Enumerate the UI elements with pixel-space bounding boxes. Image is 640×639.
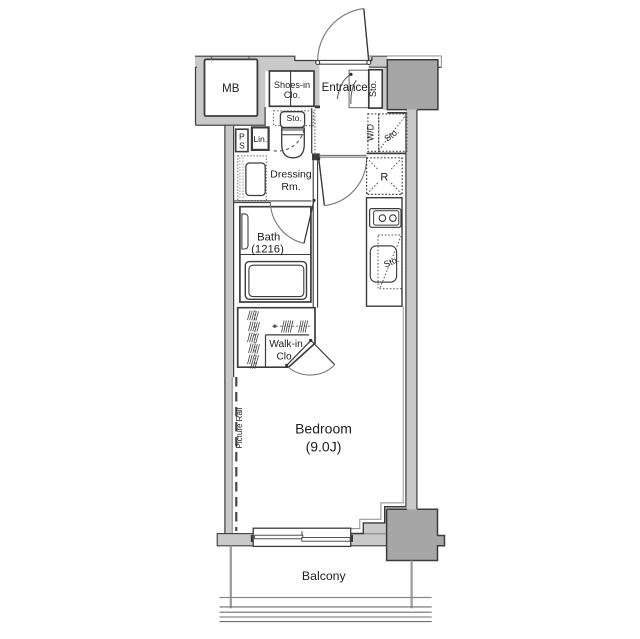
- svg-text:Walk-in: Walk-in: [269, 339, 303, 350]
- svg-text:Sto.: Sto.: [287, 113, 302, 123]
- svg-text:Balcony: Balcony: [302, 569, 347, 583]
- svg-text:Lin.: Lin.: [253, 134, 267, 144]
- svg-text:(1216): (1216): [251, 244, 284, 256]
- svg-text:Bath: Bath: [257, 232, 280, 244]
- svg-text:R: R: [380, 172, 388, 184]
- svg-text:Bedroom: Bedroom: [295, 421, 352, 437]
- svg-text:Dressing: Dressing: [270, 168, 312, 180]
- svg-text:Shoes-in: Shoes-in: [274, 80, 310, 90]
- svg-text:Picture Rail: Picture Rail: [235, 407, 244, 448]
- svg-text:Rm.: Rm.: [281, 181, 300, 193]
- svg-text:Entrance: Entrance: [322, 82, 368, 94]
- svg-text:MB: MB: [222, 83, 240, 95]
- svg-text:W/D: W/D: [365, 124, 375, 141]
- svg-text:(9.0J): (9.0J): [306, 439, 342, 455]
- svg-text:Sto.: Sto.: [368, 81, 378, 98]
- svg-text:S: S: [239, 141, 245, 151]
- svg-text:Clo.: Clo.: [284, 90, 300, 100]
